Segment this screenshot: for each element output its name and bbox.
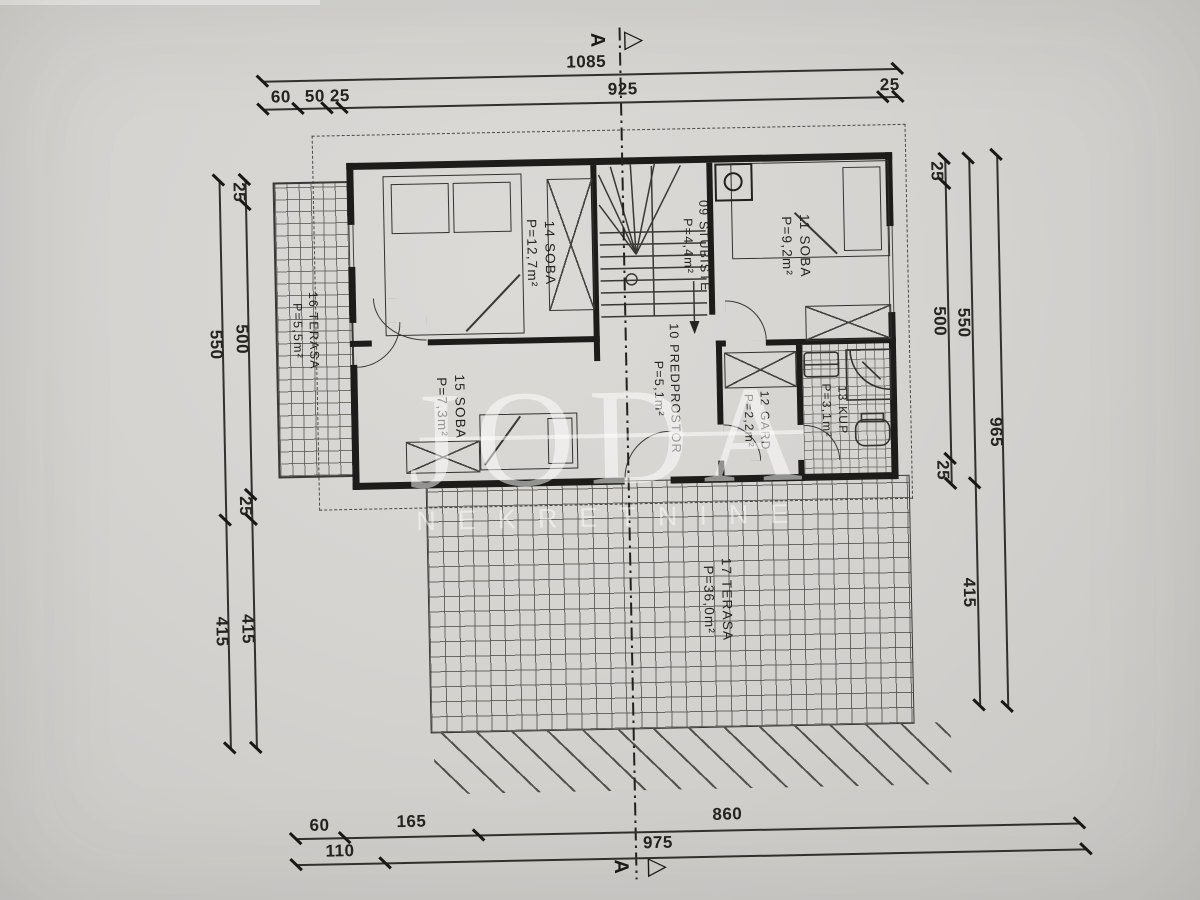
- bed-room14-pillow-left: [391, 183, 450, 234]
- dim-line-right-mid: [968, 158, 981, 705]
- dim-label-bot-60: 60: [309, 816, 329, 836]
- dim-label-bot-165: 165: [396, 812, 426, 833]
- dim-line-left-inner: [244, 179, 257, 749]
- dim-label-right-550: 550: [953, 308, 974, 338]
- dim-label-left-550: 550: [206, 330, 227, 360]
- photo-edge-highlight: [0, 0, 320, 5]
- dim-label-left-500: 500: [231, 324, 252, 354]
- section-label-bottom: A: [609, 859, 632, 874]
- floor-plan-photo: 16 TERASAP=5,5m² 14 SOBAP=12,7m² 09 STUB…: [0, 0, 1200, 900]
- bed-room11-pillow: [842, 166, 882, 251]
- section-arrow-top-icon: ▷: [624, 24, 644, 54]
- dim-label-right-965: 965: [985, 417, 1006, 447]
- wall-left-mid: [348, 267, 356, 323]
- wall-left-upper: [346, 163, 354, 225]
- dim-label-right-25b: 25: [932, 460, 952, 480]
- dim-label-1085: 1085: [566, 52, 606, 73]
- dim-label-left-415a: 415: [237, 614, 258, 644]
- dim-label-60: 60: [271, 87, 291, 107]
- dim-line-left-outer: [218, 180, 231, 750]
- dim-label-25b: 25: [880, 75, 900, 95]
- wardrobe-room11: [805, 304, 892, 341]
- dim-label-50: 50: [305, 86, 325, 106]
- ground-hatch: [434, 722, 952, 794]
- dim-label-left-415b: 415: [211, 616, 232, 646]
- dim-line-top-segments: [263, 96, 898, 110]
- room-label-16: 16 TERASAP=5,5m²: [289, 292, 323, 371]
- dim-label-right-500: 500: [929, 306, 950, 336]
- dim-label-925: 925: [608, 79, 638, 100]
- boiler-circle: [723, 172, 742, 191]
- bed-room14-pillow-right: [453, 182, 512, 233]
- room-label-17: 17 TERASAP=36,0m²: [700, 558, 737, 642]
- stair-down-arrow: [689, 321, 699, 334]
- dim-label-right-415: 415: [959, 577, 980, 607]
- room-label-09: 09 STUBIŠTEP=4,4m²: [679, 200, 713, 292]
- dim-line-bottom-2: [296, 848, 1086, 865]
- dim-label-bot-860: 860: [712, 804, 742, 825]
- room-label-14: 14 SOBAP=12,7m²: [523, 219, 559, 288]
- section-label-top: A: [585, 33, 608, 48]
- dim-label-left-25b: 25: [235, 496, 255, 516]
- dim-label-25a: 25: [330, 86, 350, 106]
- dim-label-right-25a: 25: [926, 161, 946, 181]
- room-label-11: 11 SOBAP=9,2m²: [778, 214, 814, 278]
- dim-label-bot-110: 110: [325, 841, 354, 862]
- dim-label-bot-975: 975: [643, 833, 673, 854]
- drawing: 16 TERASAP=5,5m² 14 SOBAP=12,7m² 09 STUB…: [0, 0, 1200, 900]
- boiler-box: [714, 163, 753, 202]
- room-label-13: 13 KUPP=3,1m²: [818, 383, 850, 438]
- dim-label-left-25a: 25: [229, 182, 249, 202]
- window-left: [348, 225, 354, 267]
- section-arrow-bottom-icon: ▷: [647, 851, 667, 881]
